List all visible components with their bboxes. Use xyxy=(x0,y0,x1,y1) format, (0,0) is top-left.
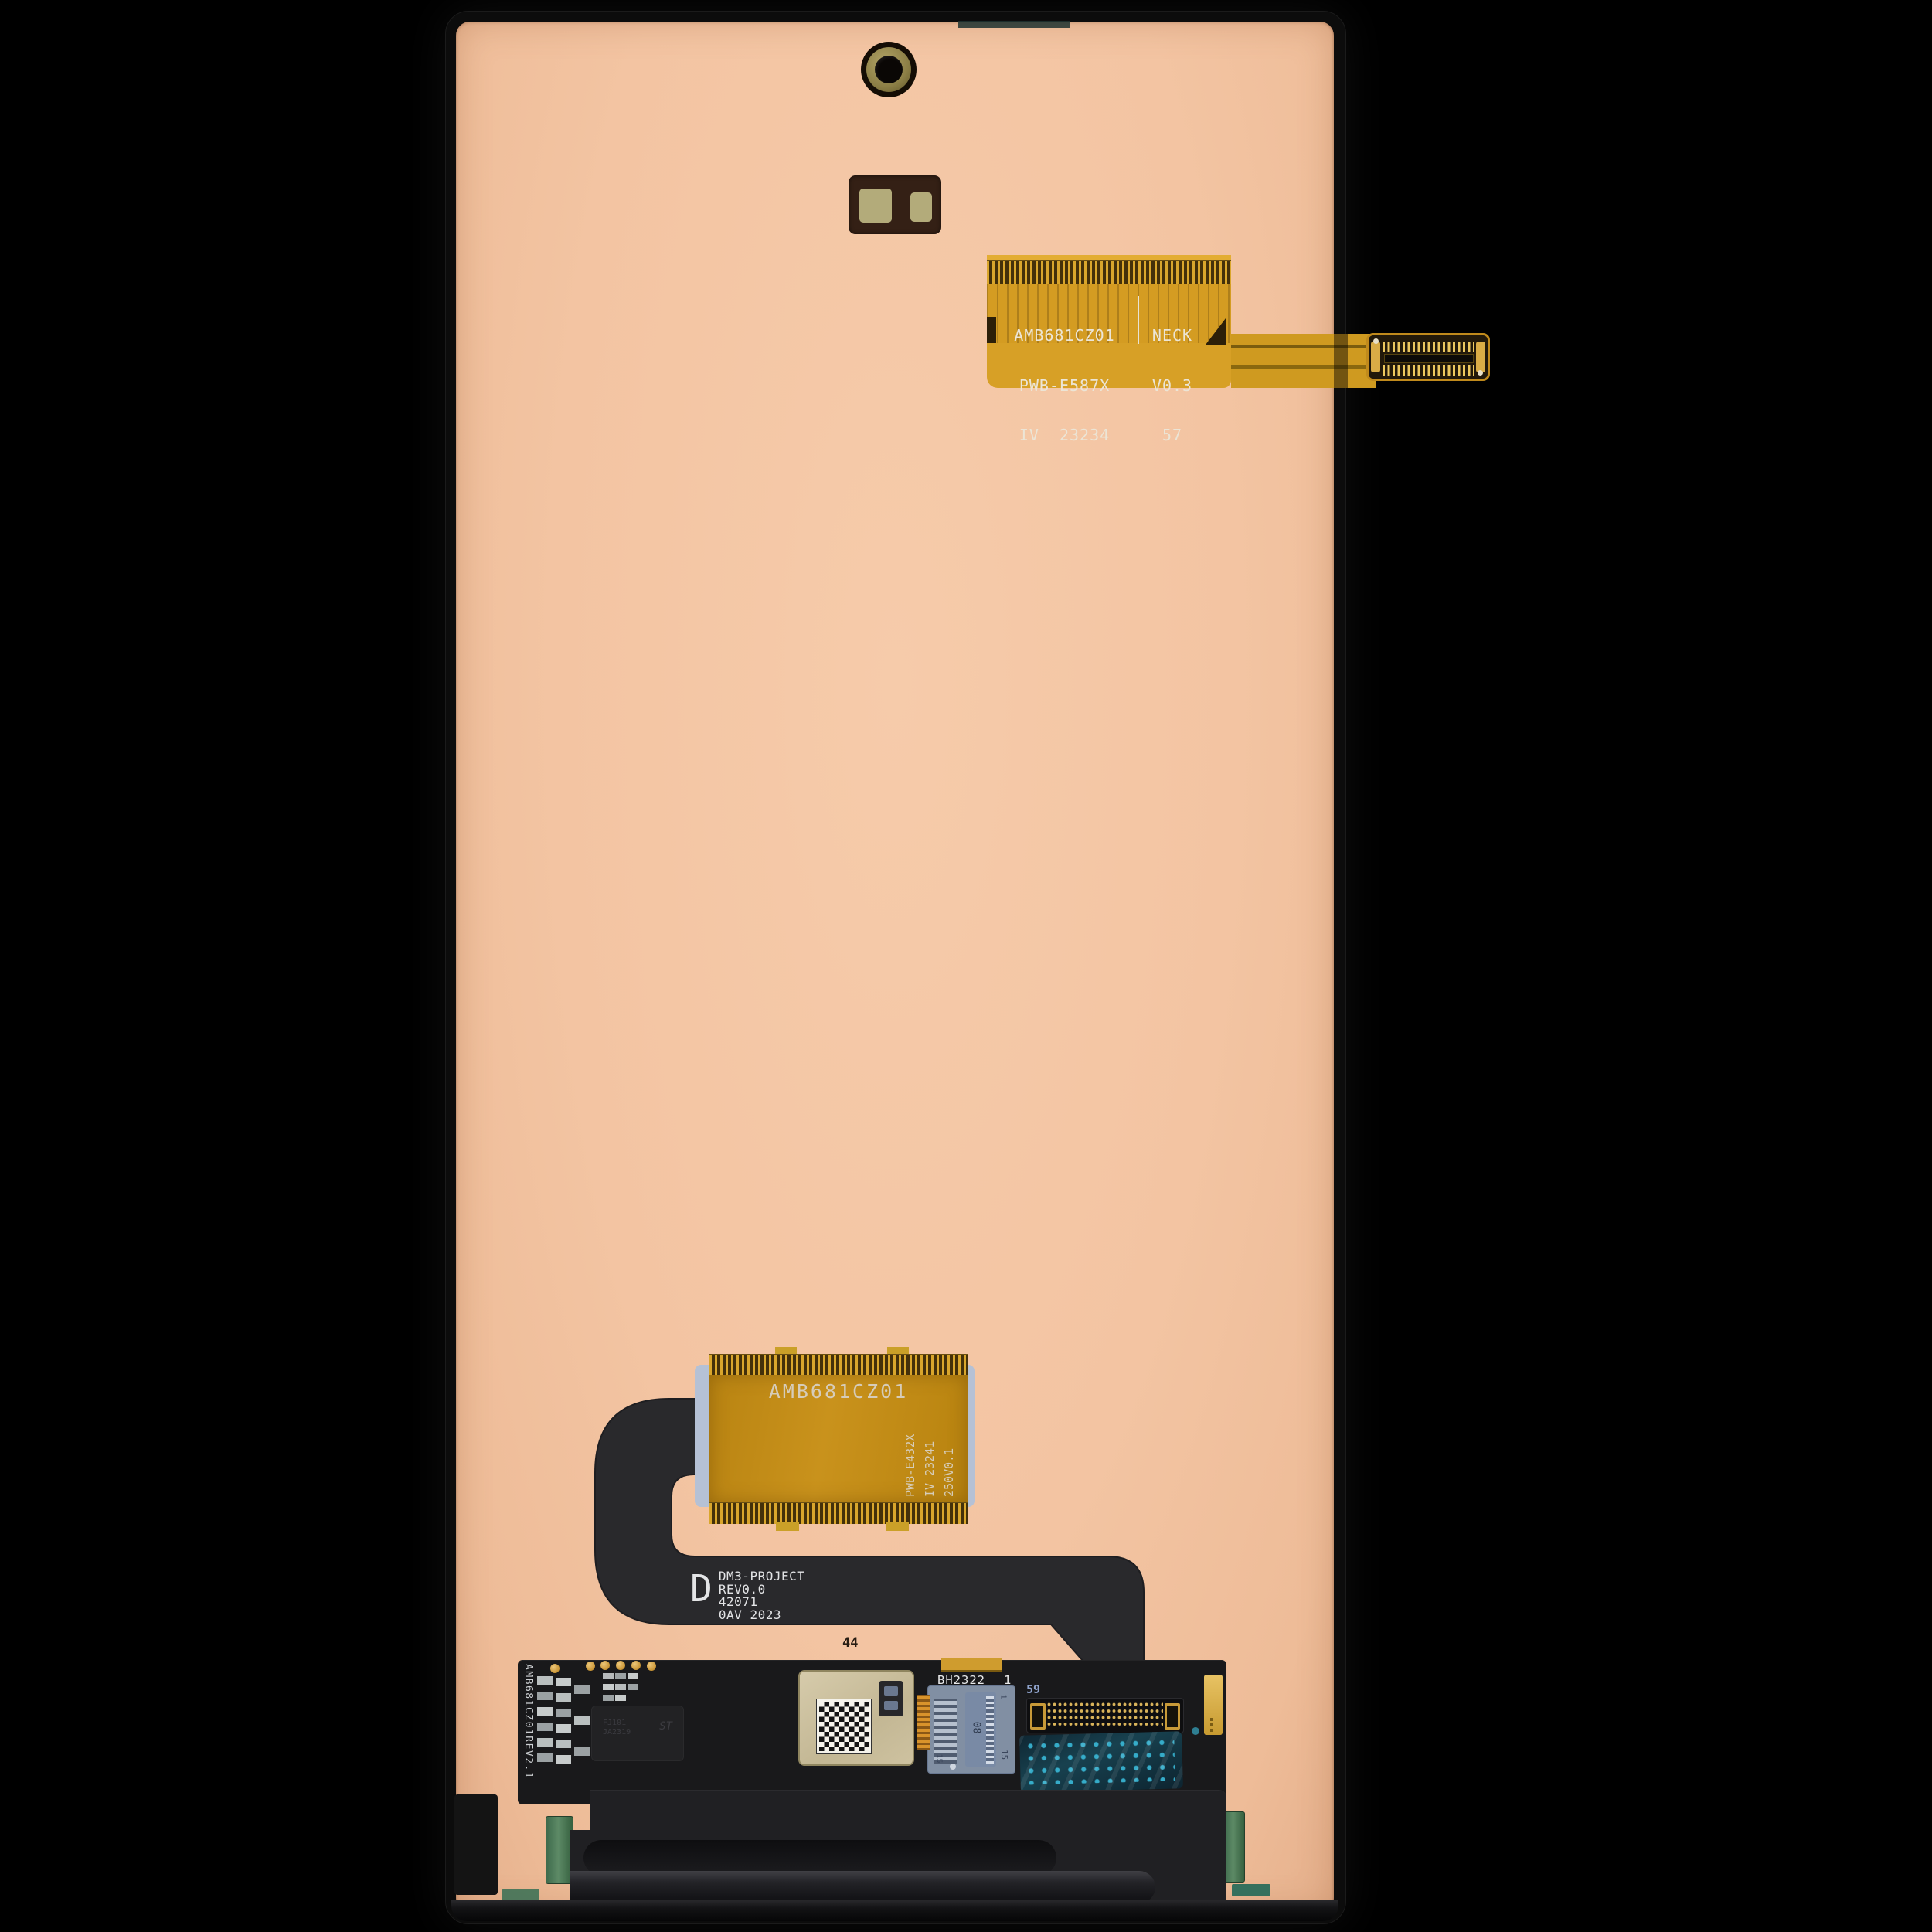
connector-pins-top xyxy=(1383,342,1474,352)
green-bit-bottom-right xyxy=(1232,1884,1270,1896)
pcb-green-strip-left xyxy=(546,1816,573,1884)
pad-index-dots xyxy=(1210,1718,1213,1721)
film-wrinkle-highlight xyxy=(1019,1731,1183,1792)
btb-pin-connector xyxy=(1026,1698,1184,1733)
mid-flex-side-line3: 250V0.1 xyxy=(940,1373,959,1497)
top-flex-line1: AMB681CZ01 xyxy=(993,328,1136,345)
test-pad xyxy=(647,1662,656,1671)
socket-gold-pads xyxy=(917,1695,930,1750)
top-flex-marking-divider xyxy=(1138,296,1139,344)
pin-bracket-right xyxy=(1165,1703,1180,1730)
blue-film-connector xyxy=(1019,1731,1183,1792)
component-slot xyxy=(884,1686,898,1696)
test-pad xyxy=(600,1661,610,1670)
top-flex-bonding-row xyxy=(987,260,1231,285)
top-flex-col2-line1: NECK xyxy=(1142,328,1202,345)
ic-line1: FJ101 xyxy=(603,1719,631,1728)
pin-field xyxy=(1047,1702,1163,1729)
top-edge-tape xyxy=(958,21,1070,28)
top-flex-marking-col1: AMB681CZ01 PWB-E587X IV 23234 xyxy=(993,294,1136,478)
ic-marking: FJ101 JA2319 xyxy=(603,1719,631,1737)
connector-dot-br xyxy=(1478,370,1483,376)
mid-flex-bonding-top xyxy=(709,1354,968,1376)
connector-center-bar xyxy=(1384,354,1474,363)
connector-dot-tl xyxy=(1373,338,1379,344)
top-flex-connector xyxy=(1366,333,1490,381)
gold-strip-pad xyxy=(941,1658,1002,1672)
socket-num-center: 08 xyxy=(970,1722,981,1734)
connector-cap-right xyxy=(1476,342,1485,372)
bottom-left-flex-edge xyxy=(454,1794,498,1895)
panel-bottom-edge-strip xyxy=(451,1900,1338,1921)
socket-center-ribs xyxy=(986,1696,994,1764)
shield-component xyxy=(879,1681,903,1716)
sensor-pad-small xyxy=(910,192,932,222)
top-flex-tail xyxy=(1231,334,1376,388)
proximity-sensor xyxy=(849,175,941,234)
mid-flex-side-marking: PWB-E432X IV 23241 250V0.1 xyxy=(901,1373,961,1497)
driver-ic-chip: FJ101 JA2319 ST xyxy=(591,1706,684,1761)
camera-hole xyxy=(861,42,917,97)
mid-flex-side-line2: IV 23241 xyxy=(920,1373,940,1497)
connector-pins-bottom xyxy=(1383,365,1474,376)
ribbon-d-mark: D xyxy=(690,1569,713,1621)
sensor-pad-large xyxy=(859,189,892,223)
component-slot xyxy=(884,1701,898,1710)
panel-edge-shadow-over-tail xyxy=(1334,334,1348,388)
flex-roll-bar xyxy=(543,1871,1155,1903)
teal-via-dot xyxy=(1192,1727,1199,1735)
smd-cluster-small xyxy=(603,1673,614,1679)
pin59-label: 59 xyxy=(1026,1682,1040,1696)
pin-bracket-left xyxy=(1030,1703,1046,1730)
mid-flex-tab-bottom-left xyxy=(776,1522,799,1531)
metal-shield xyxy=(798,1670,914,1766)
pcb-green-strip-right xyxy=(1223,1811,1245,1883)
test-pad xyxy=(631,1661,641,1670)
ribbon-line4: 0AV 2023 xyxy=(719,1609,804,1622)
top-flex-marking-col2: NECK V0.3 57 xyxy=(1142,294,1202,478)
bottom-flex-assembly xyxy=(570,1790,1226,1908)
corner-gold-pad xyxy=(1204,1675,1223,1735)
bottom-pcb: AMB681CZ01REV2.1 FJ101 JA2319 ST xyxy=(518,1660,1226,1804)
mid-flex-side-line1: PWB-E432X xyxy=(901,1373,920,1497)
test-pad xyxy=(550,1664,560,1673)
smd-cluster-main xyxy=(537,1676,553,1685)
connector-cap-left xyxy=(1371,342,1380,372)
test-pad xyxy=(616,1661,625,1670)
socket-num-right: 15 xyxy=(999,1750,1009,1760)
top-flex-line2: PWB-E587X xyxy=(993,378,1136,395)
socket-screw-dot xyxy=(950,1764,956,1770)
ic-line2: JA2319 xyxy=(603,1728,631,1737)
mid-flex-tab-bottom-right xyxy=(886,1522,909,1531)
test-pad xyxy=(586,1662,595,1671)
datamatrix-code xyxy=(817,1699,871,1753)
st-logo: ST xyxy=(659,1720,672,1733)
camera-lens xyxy=(875,56,903,83)
ribbon-pin-count: 44 xyxy=(842,1635,858,1651)
ribbon-marking-block: D DM3-PROJECT REV0.0 42071 0AV 2023 xyxy=(690,1569,804,1621)
pcb-edge-marking: AMB681CZ01REV2.1 xyxy=(522,1664,534,1779)
top-flex-col2-line3: 57 xyxy=(1142,427,1202,444)
socket-num-top: 1 xyxy=(999,1694,1008,1699)
mid-flex-bonding-bottom xyxy=(709,1502,968,1524)
socket-center-column: 08 xyxy=(965,1692,996,1767)
socket-num-left: 15 xyxy=(935,1753,944,1763)
top-flex-col2-line2: V0.3 xyxy=(1142,378,1202,395)
top-flex-line3: IV 23234 xyxy=(993,427,1136,444)
product-photo-stage: AMB681CZ01 PWB-E587X IV 23234 NECK V0.3 … xyxy=(0,0,1932,1932)
ribbon-marking-lines: DM3-PROJECT REV0.0 42071 0AV 2023 xyxy=(719,1569,804,1621)
fpc-socket: 08 1 15 15 xyxy=(927,1685,1015,1774)
